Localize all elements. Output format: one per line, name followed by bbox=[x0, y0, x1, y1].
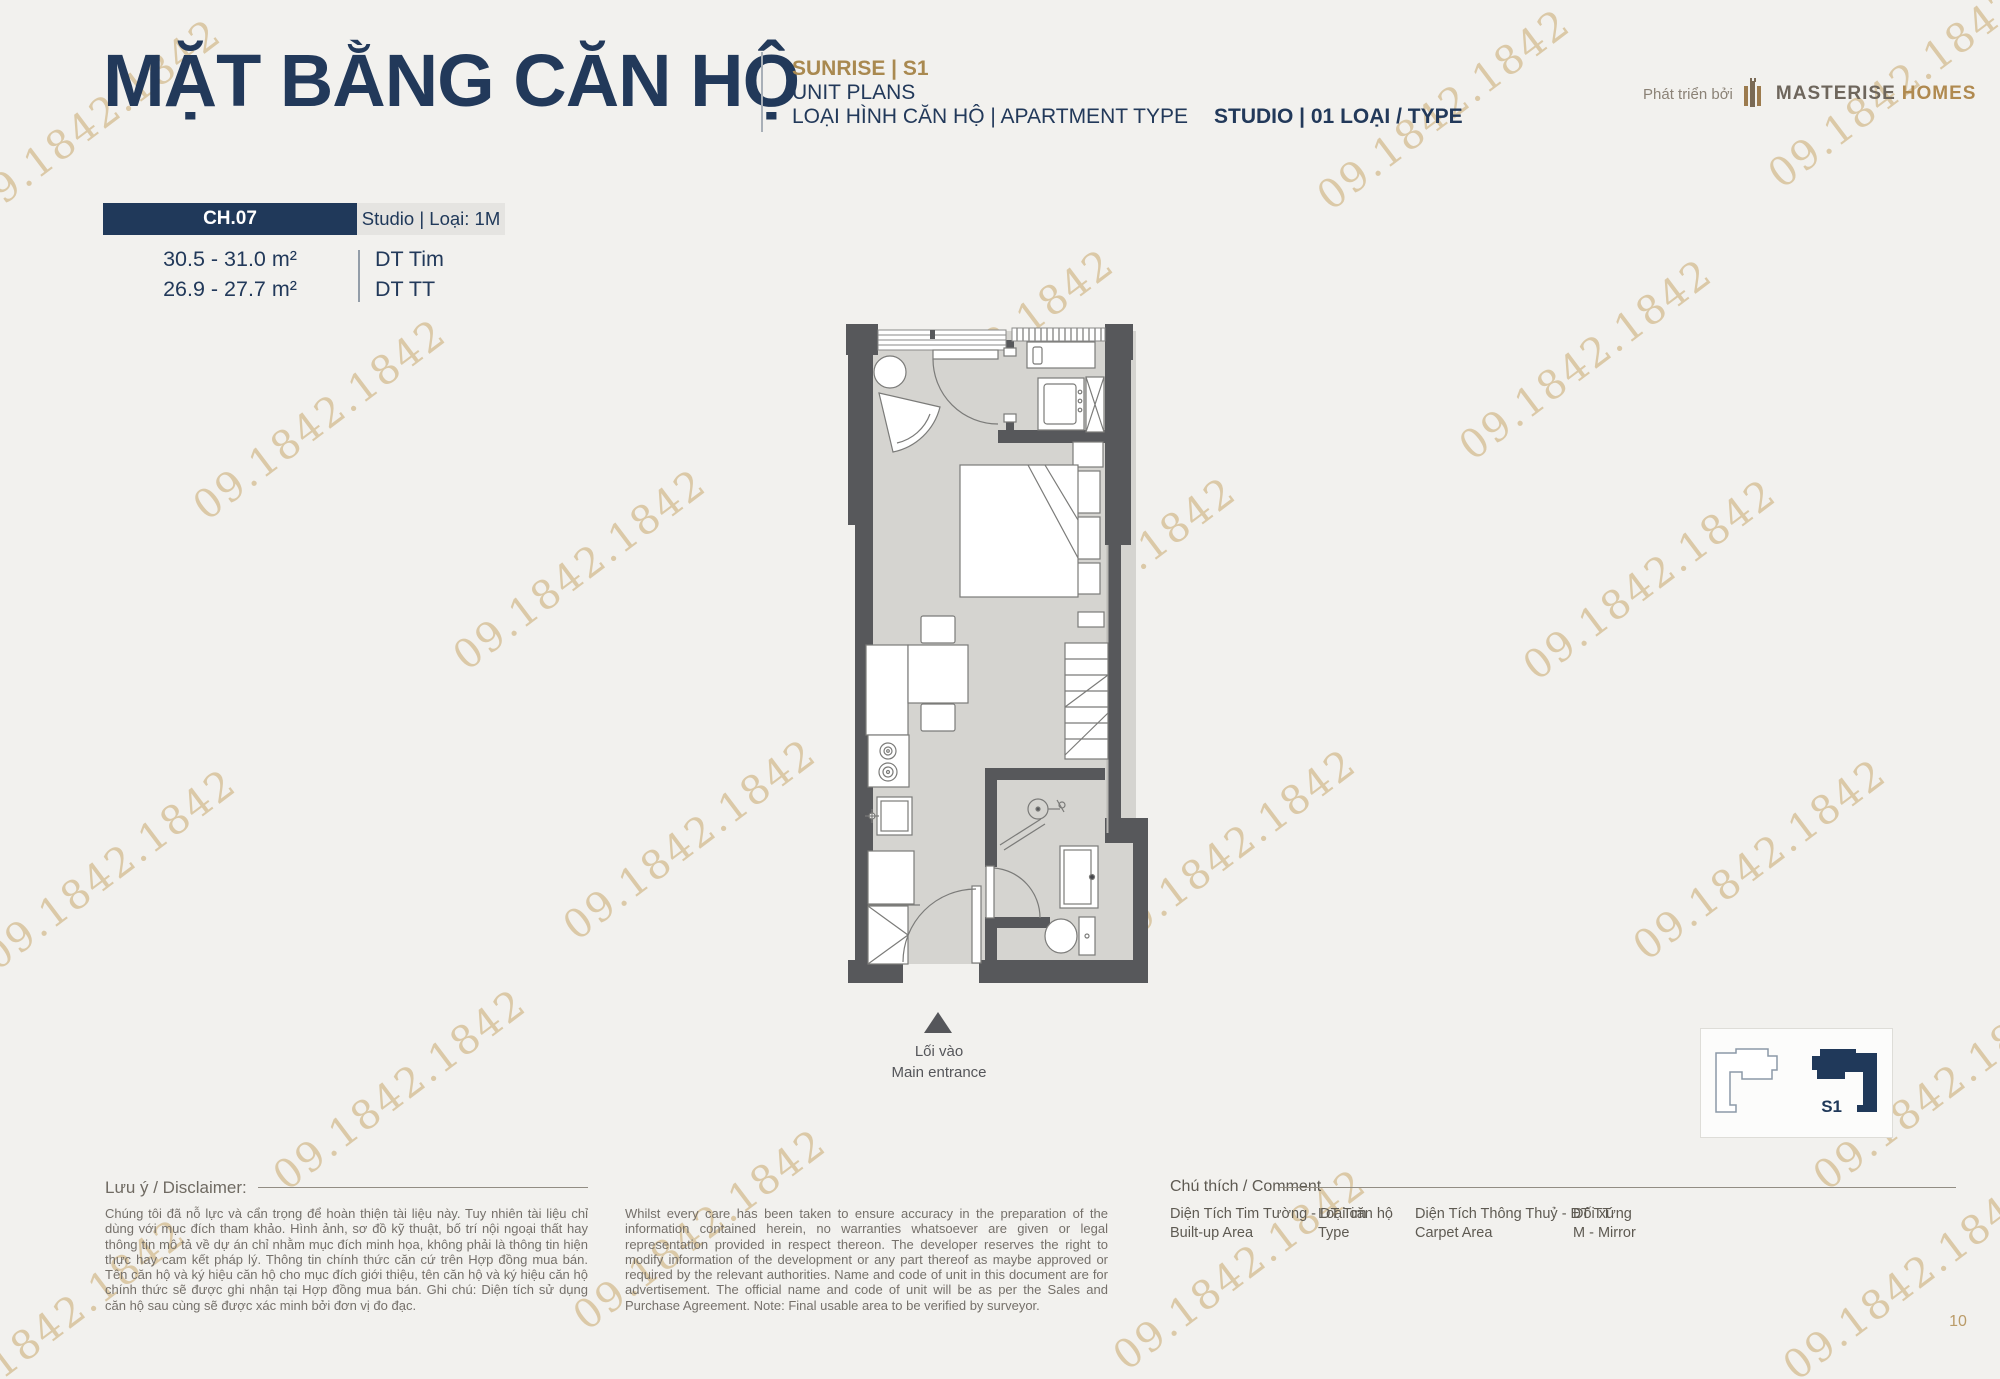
developer-name: MASTERISE bbox=[1776, 83, 1896, 105]
fridge bbox=[868, 906, 908, 964]
developer-logo: Phát triển bởi MASTERISE HOMES bbox=[1643, 76, 1976, 112]
legend-item-mirror: Đối xứng M - Mirror bbox=[1573, 1205, 1636, 1243]
entrance-door-leaf bbox=[972, 886, 981, 963]
bathroom-door-leaf bbox=[986, 866, 994, 918]
floor-plan bbox=[838, 300, 1172, 1000]
developer-prefix: Phát triển bởi bbox=[1643, 86, 1733, 103]
apartment-type-row: LOẠI HÌNH CĂN HỘ | APARTMENT TYPESTUDIO … bbox=[792, 105, 1463, 129]
brochure-page: 09.1842.184209.1842.184209.1842.184209.1… bbox=[0, 0, 2000, 1379]
entrance-label: Lối vào Main entrance bbox=[866, 1041, 1012, 1083]
side-counter bbox=[866, 645, 908, 735]
kitchen-cabinet bbox=[868, 851, 914, 904]
watermark-text: 09.1842.1842 bbox=[265, 980, 535, 1200]
nightstand bbox=[1073, 442, 1103, 467]
disclaimer-title: Lưu ý / Disclaimer: bbox=[105, 1178, 247, 1198]
bench bbox=[1078, 612, 1104, 627]
disclaimer-rule bbox=[258, 1187, 588, 1188]
area-carpet-label: DT TT bbox=[375, 274, 444, 304]
pillow bbox=[1075, 517, 1100, 559]
disclaimer-text-vi: Chúng tôi đã nỗ lực và cẩn trọng để hoàn… bbox=[105, 1206, 588, 1313]
watermark-text: 09.1842.1842 bbox=[185, 310, 455, 530]
project-name: SUNRISE | S1 bbox=[792, 57, 1463, 81]
entrance-label-en: Main entrance bbox=[866, 1062, 1012, 1083]
apartment-type-value: STUDIO | 01 LOẠI / TYPE bbox=[1214, 105, 1463, 128]
page-title: MẶT BẰNG CĂN HỘ bbox=[103, 38, 799, 123]
chair bbox=[921, 616, 955, 643]
area-built-up-label: DT Tim bbox=[375, 244, 444, 274]
unit-type-badge: Studio | Loại: 1M bbox=[357, 203, 505, 235]
watermark-text: 09.1842.1842 bbox=[1515, 470, 1785, 690]
utility-window bbox=[1012, 328, 1105, 341]
key-plan: S1 bbox=[1700, 1028, 1894, 1138]
dining-table bbox=[908, 645, 968, 703]
legend-rule bbox=[1280, 1187, 1956, 1188]
round-table bbox=[874, 356, 906, 388]
developer-name-2: HOMES bbox=[1902, 83, 1977, 105]
apartment-type-label: LOẠI HÌNH CĂN HỘ | APARTMENT TYPE bbox=[792, 105, 1188, 128]
watermark-text: 09.1842.1842 bbox=[1625, 750, 1895, 970]
area-carpet: 26.9 - 27.7 m² bbox=[103, 274, 357, 304]
unit-plans-subtitle: UNIT PLANS bbox=[792, 81, 1463, 105]
utility-door-leaf bbox=[933, 350, 998, 359]
masterise-homes-icon bbox=[1742, 78, 1768, 110]
header-divider bbox=[761, 52, 763, 132]
watermark-text: 09.1842.1842 bbox=[1775, 1170, 2000, 1379]
watermark-text: 09.1842.1842 bbox=[555, 730, 825, 950]
watermark-text: 09.1842.1842 bbox=[445, 460, 715, 680]
balcony-sliding-door bbox=[878, 330, 1006, 350]
unit-code-badge: CH.07 bbox=[103, 203, 357, 235]
watermark-text: 09.1842.1842 bbox=[1451, 250, 1721, 470]
area-built-up: 30.5 - 31.0 m² bbox=[103, 244, 357, 274]
keyplan-label: S1 bbox=[1821, 1097, 1842, 1116]
areas-divider bbox=[358, 250, 360, 302]
chair bbox=[921, 704, 955, 731]
watermark-text: 09.1842.1842 bbox=[0, 760, 245, 980]
entrance-label-vi: Lối vào bbox=[866, 1041, 1012, 1062]
wardrobe bbox=[1065, 643, 1108, 759]
toilet bbox=[1045, 919, 1077, 953]
pillow bbox=[1075, 471, 1100, 513]
cushion bbox=[1075, 563, 1100, 594]
legend-item-type: Loại căn hộ Type bbox=[1318, 1205, 1393, 1243]
disclaimer-text-en: Whilst every care has been taken to ensu… bbox=[625, 1206, 1108, 1313]
unit-area-labels: DT Tim DT TT bbox=[375, 244, 444, 304]
unit-areas: 30.5 - 31.0 m² 26.9 - 27.7 m² bbox=[103, 244, 357, 304]
bed bbox=[960, 465, 1078, 597]
page-number: 10 bbox=[1938, 1313, 1978, 1331]
header-info: SUNRISE | S1 UNIT PLANS LOẠI HÌNH CĂN HỘ… bbox=[792, 57, 1463, 129]
entrance-arrow bbox=[924, 1012, 952, 1033]
